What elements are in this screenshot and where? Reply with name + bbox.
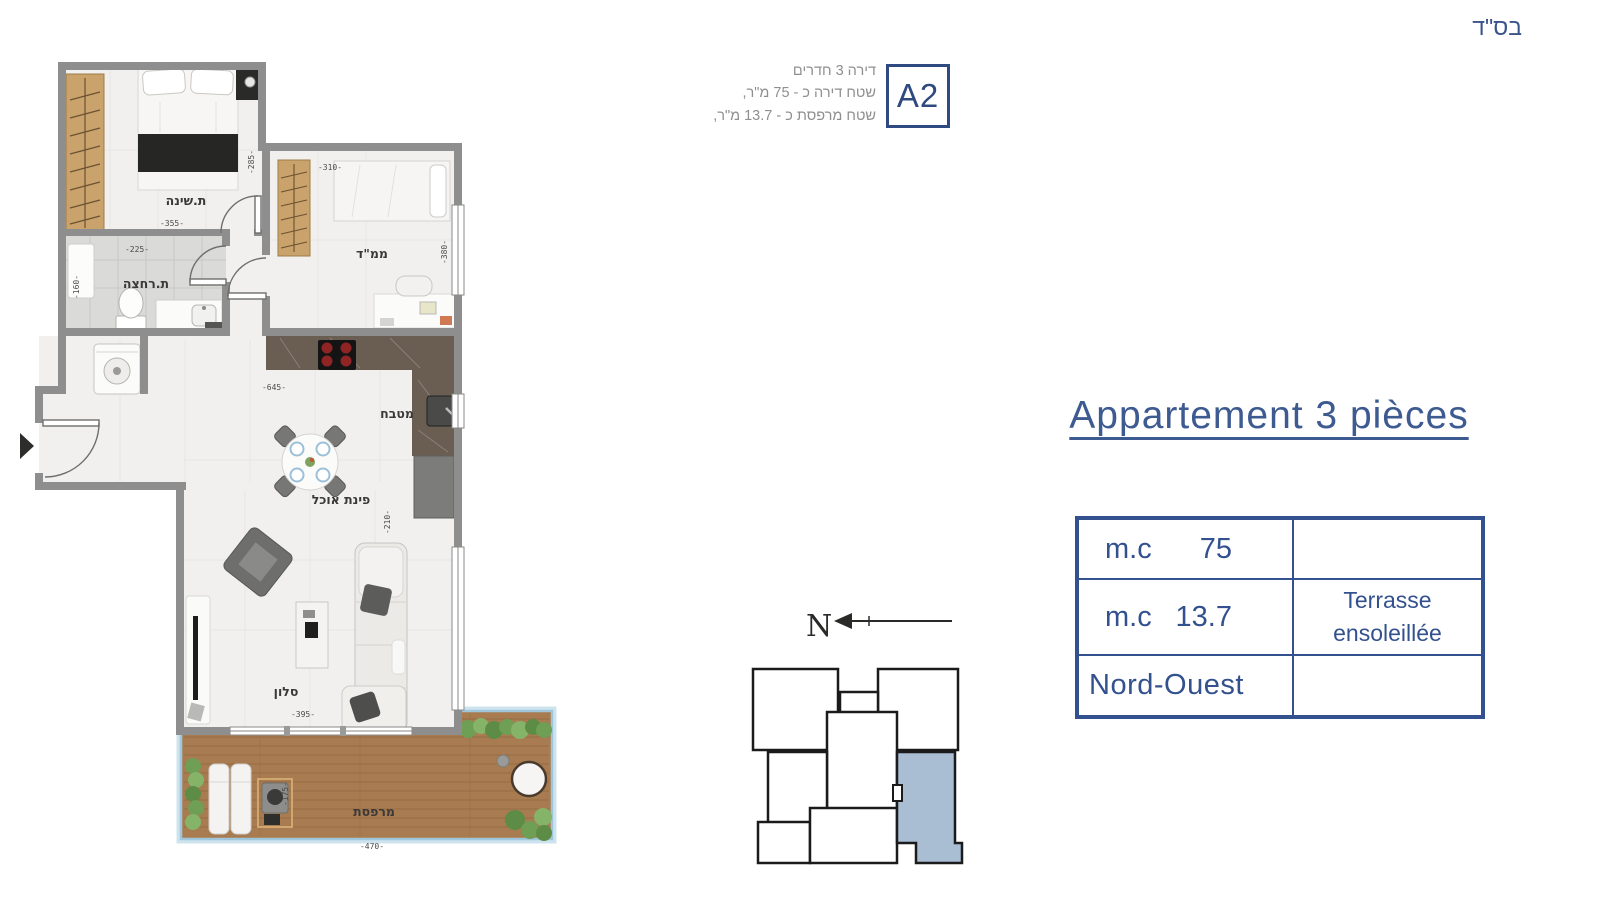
floorplan: ת.שינה ממ"ד ת.רחצה מטבח פינת אוכל סלון מ… bbox=[0, 0, 580, 900]
bathroom-door bbox=[190, 279, 226, 285]
key-plan: N bbox=[720, 592, 980, 882]
terrace-table bbox=[512, 762, 546, 796]
kitchen-label: מטבח bbox=[380, 406, 414, 421]
north-arrow-icon bbox=[834, 613, 952, 629]
terrace-stool bbox=[497, 755, 509, 767]
entrance-arrow-icon bbox=[20, 433, 34, 459]
dim-bathroom-height: -160- bbox=[72, 275, 81, 299]
fridge bbox=[414, 456, 454, 518]
spec-orientation-note bbox=[1293, 655, 1482, 716]
dining-set bbox=[273, 424, 347, 498]
terrace-note-line-1: Terrasse bbox=[1343, 584, 1431, 617]
spec-row-surface: m.c 75 bbox=[1078, 519, 1293, 579]
unit-code: A2 bbox=[897, 77, 939, 115]
spec-table: m.c 75 m.c 13.7 Terrasse ensoleillée Nor… bbox=[1075, 516, 1485, 719]
toilet bbox=[119, 288, 143, 318]
spec-terrace-label: m.c bbox=[1105, 601, 1152, 634]
unit-code-badge: A2 bbox=[886, 64, 950, 128]
dim-terrace-height: -175- bbox=[281, 782, 290, 806]
dim-living-width: -395- bbox=[291, 710, 315, 719]
bedroom-door bbox=[255, 196, 261, 233]
unit-info-block: דירה 3 חדרים שטח דירה כ - 75 מ"ר, שטח מר… bbox=[700, 60, 876, 127]
dining-label: פינת אוכל bbox=[312, 492, 371, 507]
terrace-note-line-2: ensoleillée bbox=[1333, 617, 1442, 650]
living-label: סלון bbox=[274, 684, 299, 699]
unit-info-line-3: שטח מרפסת כ - 13.7 מ"ר, bbox=[700, 105, 876, 127]
tv bbox=[193, 616, 198, 700]
spec-row-terrace: m.c 13.7 bbox=[1078, 579, 1293, 655]
dim-bedroom-height: -285- bbox=[247, 150, 256, 174]
spec-terrace-note: Terrasse ensoleillée bbox=[1293, 579, 1482, 655]
spec-orientation-label: Nord-Ouest bbox=[1089, 669, 1244, 702]
safe-room-label: ממ"ד bbox=[356, 246, 388, 261]
unit-info-line-1: דירה 3 חדרים bbox=[700, 60, 876, 82]
dim-bedroom-width: -355- bbox=[160, 219, 184, 228]
spec-surface-value: 75 bbox=[1200, 533, 1266, 566]
highlighted-unit bbox=[897, 752, 962, 863]
dim-safe-room-width: -310- bbox=[318, 163, 342, 172]
safe-room-door bbox=[228, 293, 266, 299]
spec-terrace-value: 13.7 bbox=[1176, 601, 1266, 634]
spec-surface-note bbox=[1293, 519, 1482, 579]
dim-kitchen-width: -645- bbox=[262, 383, 286, 392]
entrance-door bbox=[43, 420, 99, 426]
desk-chair bbox=[396, 276, 432, 296]
spec-row-orientation: Nord-Ouest bbox=[1078, 655, 1293, 716]
bathroom-label: ת.רחצה bbox=[123, 276, 169, 291]
spec-surface-label: m.c bbox=[1105, 533, 1152, 566]
bedroom-label: ת.שינה bbox=[166, 193, 207, 208]
north-label: N bbox=[806, 609, 832, 644]
terrace-label: מרפסת bbox=[353, 804, 395, 819]
dim-safe-room-height: -380- bbox=[440, 240, 449, 264]
dim-terrace-width: -470- bbox=[360, 842, 384, 851]
dim-living-height: -210- bbox=[383, 510, 392, 534]
page: בס"ד דירה 3 חדרים שטח דירה כ - 75 מ"ר, ש… bbox=[0, 0, 1600, 900]
unit-notch bbox=[893, 785, 902, 801]
apartment-title: Appartement 3 pièces bbox=[1048, 394, 1490, 438]
dim-bathroom-width: -225- bbox=[125, 245, 149, 254]
bsd-text: בס"ד bbox=[1472, 14, 1522, 41]
unit-info-line-2: שטח דירה כ - 75 מ"ר, bbox=[700, 82, 876, 104]
